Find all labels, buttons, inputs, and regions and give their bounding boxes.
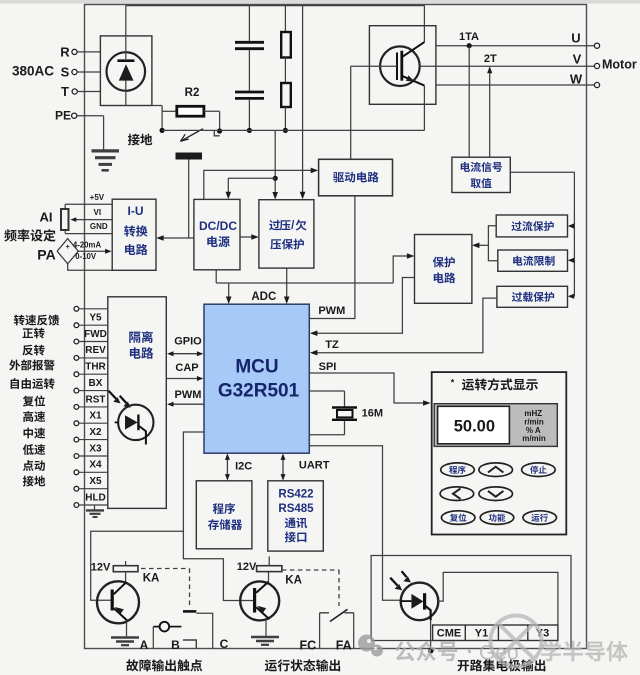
svg-text:RST: RST	[86, 394, 106, 405]
svg-text:UART: UART	[299, 460, 330, 472]
svg-text:ADC: ADC	[251, 291, 276, 303]
svg-text:MCU: MCU	[235, 357, 278, 378]
svg-text:GPIO: GPIO	[174, 336, 202, 348]
svg-text:Motor: Motor	[602, 57, 637, 71]
svg-text:RS422: RS422	[278, 488, 313, 500]
svg-text:AI: AI	[40, 209, 53, 224]
svg-text:X5: X5	[89, 476, 102, 487]
svg-text:PWM: PWM	[318, 305, 345, 317]
svg-text:*: *	[451, 378, 455, 388]
svg-text:RS485: RS485	[278, 503, 314, 515]
svg-text:T: T	[61, 84, 69, 99]
svg-text:V: V	[573, 52, 582, 67]
svg-text:X2: X2	[89, 427, 102, 438]
svg-text:FWD: FWD	[84, 329, 107, 340]
svg-text:+5V: +5V	[90, 193, 105, 202]
svg-text:12V: 12V	[237, 561, 257, 573]
svg-text:R2: R2	[185, 87, 200, 99]
svg-text:CAP: CAP	[175, 362, 198, 374]
svg-text:X1: X1	[89, 411, 102, 422]
svg-text:GND: GND	[90, 222, 108, 231]
svg-text:16M: 16M	[362, 407, 383, 419]
svg-text:I-U: I-U	[128, 204, 144, 218]
svg-text:W: W	[570, 72, 583, 87]
svg-text:B: B	[171, 638, 180, 652]
svg-text:380AC: 380AC	[12, 63, 54, 78]
svg-text:KA: KA	[285, 575, 302, 587]
svg-text:X4: X4	[89, 460, 102, 471]
svg-text:Y1: Y1	[475, 628, 488, 640]
svg-text:PE: PE	[55, 109, 71, 123]
svg-text:VI: VI	[94, 208, 102, 217]
svg-text:I2C: I2C	[235, 461, 252, 473]
svg-text:+: +	[66, 242, 71, 251]
svg-text:HLD: HLD	[85, 492, 106, 503]
svg-text:PA: PA	[37, 247, 55, 263]
svg-text:m/min: m/min	[522, 434, 546, 443]
svg-text:A: A	[140, 638, 149, 652]
svg-text:2T: 2T	[484, 53, 497, 65]
svg-text:50.00: 50.00	[454, 417, 495, 435]
svg-text:KA: KA	[143, 572, 160, 584]
svg-text:TZ: TZ	[325, 339, 339, 351]
svg-text:G32R501: G32R501	[218, 381, 300, 402]
svg-text:12V: 12V	[91, 562, 111, 574]
svg-text:0-10V: 0-10V	[75, 252, 97, 261]
svg-text:·: ·	[467, 640, 474, 663]
svg-text:CME: CME	[437, 628, 461, 640]
svg-text:U: U	[571, 31, 580, 46]
svg-text:FA: FA	[336, 639, 352, 653]
svg-text:DC/DC: DC/DC	[199, 219, 237, 233]
svg-text:X3: X3	[89, 443, 102, 454]
svg-text:SPI: SPI	[319, 361, 337, 373]
svg-text:S: S	[61, 65, 70, 80]
svg-text:FC: FC	[299, 639, 316, 653]
svg-text:Y5: Y5	[89, 313, 102, 324]
svg-text:4-20mA: 4-20mA	[73, 241, 102, 250]
svg-text:REV: REV	[85, 345, 106, 356]
svg-text:C: C	[220, 637, 229, 651]
svg-text:THR: THR	[85, 362, 106, 373]
svg-text:1TA: 1TA	[459, 31, 479, 43]
svg-text:BX: BX	[89, 378, 103, 389]
svg-text:PWM: PWM	[175, 389, 202, 401]
svg-text:R: R	[60, 45, 70, 60]
